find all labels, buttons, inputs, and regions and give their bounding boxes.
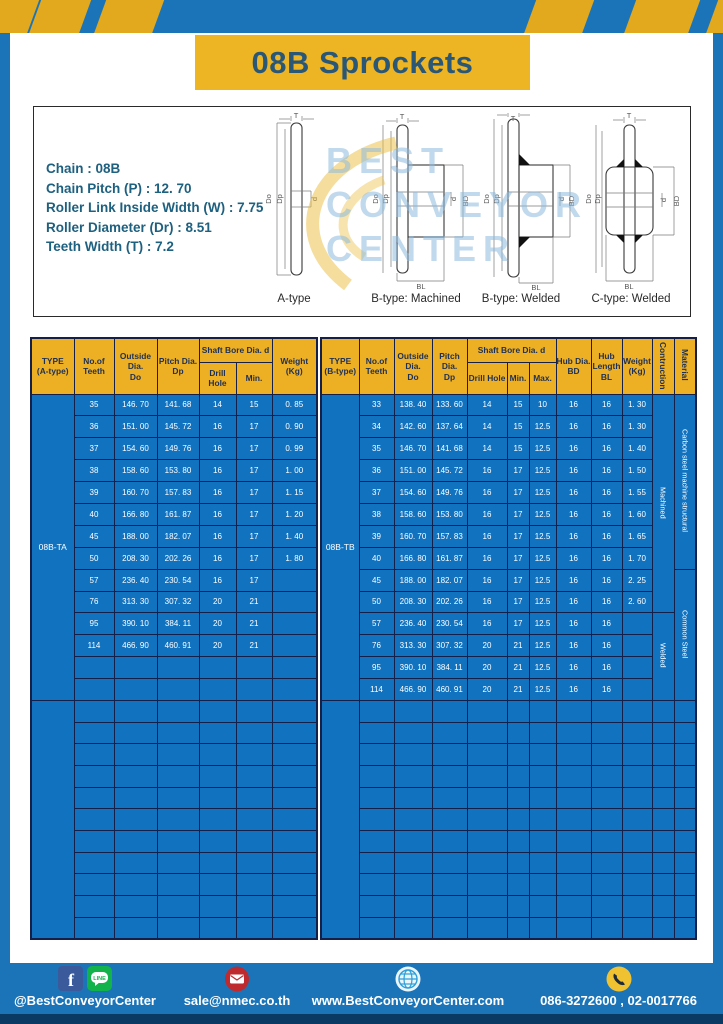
- table-cell: [272, 635, 317, 657]
- table-cell: 0. 90: [272, 416, 317, 438]
- line-icon: LINE: [87, 966, 112, 991]
- table-row: [321, 896, 696, 918]
- table-cell: [507, 787, 529, 809]
- table-cell: [652, 896, 674, 918]
- svg-text:Dp: Dp: [593, 194, 602, 204]
- table-cell: [74, 809, 114, 831]
- table-cell: 45: [359, 569, 394, 591]
- table-cell: [622, 744, 652, 766]
- table-row: 37154. 60149. 7616170. 99: [31, 438, 317, 460]
- table-cell: [674, 852, 696, 874]
- spec-line: Chain Pitch (P) : 12. 70: [46, 179, 263, 199]
- table-cell: 20: [467, 657, 507, 679]
- table-cell: 182. 07: [157, 525, 199, 547]
- table-cell: [114, 809, 157, 831]
- table-cell: 16: [199, 460, 236, 482]
- table-cell: [622, 787, 652, 809]
- col-header-outside-dia: Outside Dia. Do: [114, 338, 157, 394]
- table-cell: [359, 809, 394, 831]
- table-cell: [674, 700, 696, 722]
- table-cell: [236, 766, 272, 788]
- table-cell: 16: [591, 416, 622, 438]
- table-cell: [359, 722, 394, 744]
- table-cell: [394, 831, 432, 853]
- table-cell: [114, 766, 157, 788]
- table-row: 38158. 60153. 80161712.516161. 60: [321, 503, 696, 525]
- table-cell: [591, 766, 622, 788]
- table-cell: [652, 809, 674, 831]
- table-cell: 1. 15: [272, 482, 317, 504]
- a-type-table: TYPE (A-type) No.of Teeth Outside Dia. D…: [30, 337, 318, 940]
- table-cell: 16: [591, 460, 622, 482]
- table-row: [31, 874, 317, 896]
- table-cell: 390. 10: [114, 613, 157, 635]
- svg-text:Do: Do: [371, 194, 380, 204]
- table-cell: 16: [591, 503, 622, 525]
- table-cell: 35: [74, 394, 114, 416]
- table-cell: [556, 896, 591, 918]
- table-cell: 21: [507, 657, 529, 679]
- table-cell: 208. 30: [394, 591, 432, 613]
- table-cell: [556, 787, 591, 809]
- table-cell: [467, 831, 507, 853]
- table-cell: 12.5: [529, 438, 556, 460]
- table-cell: [236, 874, 272, 896]
- svg-text:d: d: [659, 198, 668, 202]
- table-cell: [652, 722, 674, 744]
- table-row: 08B-TB33138. 40133. 6014151016161. 30Mac…: [321, 394, 696, 416]
- table-cell: 157. 83: [432, 525, 467, 547]
- footer-social-section: f LINE @BestConveyorCenter: [0, 965, 170, 1012]
- table-row: 95390. 10384. 11202112.51616: [321, 657, 696, 679]
- table-cell: 17: [507, 569, 529, 591]
- table-cell: Machined: [652, 394, 674, 613]
- table-cell: 460. 91: [432, 679, 467, 701]
- table-cell: 16: [199, 503, 236, 525]
- table-cell: [467, 809, 507, 831]
- table-cell: [432, 896, 467, 918]
- table-cell: 16: [556, 438, 591, 460]
- table-cell: 20: [199, 591, 236, 613]
- table-cell: [359, 744, 394, 766]
- col-header-max: Max.: [529, 362, 556, 394]
- table-cell: [674, 787, 696, 809]
- table-cell: [74, 766, 114, 788]
- table-cell: [157, 896, 199, 918]
- diagram-label-c-type-welded: C-type: Welded: [576, 293, 686, 309]
- table-row: 114466. 90460. 912021: [31, 635, 317, 657]
- table-row: [31, 852, 317, 874]
- table-cell: [272, 700, 317, 722]
- table-cell: [394, 809, 432, 831]
- table-cell: 12.5: [529, 591, 556, 613]
- table-cell: Welded: [652, 613, 674, 701]
- table-cell: 16: [556, 547, 591, 569]
- table-cell: [432, 787, 467, 809]
- table-cell: 16: [467, 547, 507, 569]
- table-cell: [272, 679, 317, 701]
- spec-line: Roller Diameter (Dr) : 8.51: [46, 218, 263, 238]
- diagram-box: BEST CONVEYOR CENTER Chain : 08B Chain P…: [33, 106, 691, 317]
- table-cell: [359, 787, 394, 809]
- table-cell: [157, 917, 199, 939]
- table-row: [31, 657, 317, 679]
- table-cell: [114, 744, 157, 766]
- table-cell: [157, 744, 199, 766]
- table-row: [321, 700, 696, 722]
- top-stripe-bar: [0, 0, 723, 33]
- table-cell: [591, 852, 622, 874]
- table-cell: 188. 00: [394, 569, 432, 591]
- table-cell: [622, 896, 652, 918]
- table-cell: [74, 657, 114, 679]
- table-row: [321, 809, 696, 831]
- table-cell: 35: [359, 438, 394, 460]
- table-cell: 313. 30: [394, 635, 432, 657]
- table-cell: [272, 896, 317, 918]
- svg-text:T: T: [294, 113, 299, 120]
- svg-text:Dp: Dp: [492, 194, 501, 204]
- table-cell: 141. 68: [157, 394, 199, 416]
- table-row: 38158. 60153. 8016171. 00: [31, 460, 317, 482]
- table-row: [321, 831, 696, 853]
- table-cell: 460. 91: [157, 635, 199, 657]
- table-row: 37154. 60149. 76161712.516161. 55: [321, 482, 696, 504]
- table-cell: [114, 787, 157, 809]
- table-cell: 236. 40: [114, 569, 157, 591]
- table-cell: [394, 896, 432, 918]
- table-cell: [114, 700, 157, 722]
- table-cell: [157, 657, 199, 679]
- table-cell: 1. 30: [622, 416, 652, 438]
- title-banner: 08B Sprockets: [195, 35, 530, 90]
- table-cell: 10: [529, 394, 556, 416]
- table-cell: 12.5: [529, 657, 556, 679]
- table-cell: 1. 60: [622, 503, 652, 525]
- table-cell: [272, 852, 317, 874]
- table-cell: 16: [467, 503, 507, 525]
- svg-text:f: f: [68, 970, 75, 990]
- table-cell: 16: [591, 657, 622, 679]
- spec-line: Teeth Width (T) : 7.2: [46, 237, 263, 257]
- footer-email: sale@nmec.co.th: [184, 993, 291, 1008]
- table-cell: [467, 917, 507, 939]
- globe-icon: [395, 966, 421, 992]
- table-cell: [359, 874, 394, 896]
- stripe-decoration: [622, 0, 703, 33]
- table-row: [321, 852, 696, 874]
- table-cell: 12.5: [529, 569, 556, 591]
- table-cell: [432, 831, 467, 853]
- table-cell: [591, 917, 622, 939]
- table-cell: [114, 679, 157, 701]
- table-cell: [199, 679, 236, 701]
- table-cell: 16: [556, 569, 591, 591]
- table-cell: [272, 569, 317, 591]
- table-cell: [622, 657, 652, 679]
- table-cell: [467, 744, 507, 766]
- table-cell: 20: [199, 613, 236, 635]
- table-cell: [432, 766, 467, 788]
- table-cell: 1. 70: [622, 547, 652, 569]
- table-cell: 160. 70: [394, 525, 432, 547]
- table-cell: [236, 744, 272, 766]
- table-cell: 38: [359, 503, 394, 525]
- table-cell: 16: [591, 482, 622, 504]
- table-cell: 16: [556, 613, 591, 635]
- table-cell: 16: [591, 569, 622, 591]
- table-cell: [652, 874, 674, 896]
- table-cell: 1. 20: [272, 503, 317, 525]
- table-cell: 1. 30: [622, 394, 652, 416]
- table-cell: [467, 766, 507, 788]
- table-cell: [114, 831, 157, 853]
- table-cell: [674, 896, 696, 918]
- table-cell: [507, 744, 529, 766]
- table-cell: [272, 787, 317, 809]
- table-cell: [74, 679, 114, 701]
- table-cell: 16: [556, 503, 591, 525]
- table-cell: 20: [467, 679, 507, 701]
- table-cell: [199, 657, 236, 679]
- table-cell: [272, 831, 317, 853]
- table-cell: [74, 722, 114, 744]
- table-cell: 16: [591, 438, 622, 460]
- table-row: [31, 679, 317, 701]
- table-cell: [529, 722, 556, 744]
- table-cell: 45: [74, 525, 114, 547]
- table-cell: 17: [236, 438, 272, 460]
- table-cell: [507, 722, 529, 744]
- table-cell: [272, 917, 317, 939]
- table-cell: [622, 917, 652, 939]
- table-row: 76313. 30307. 32202112.51616: [321, 635, 696, 657]
- footer-email-section: sale@nmec.co.th: [172, 965, 302, 1012]
- table-cell: [394, 917, 432, 939]
- table-row: 50208. 30202. 26161712.516162. 60: [321, 591, 696, 613]
- table-cell: 39: [74, 482, 114, 504]
- table-cell: 16: [199, 569, 236, 591]
- table-cell: 16: [591, 525, 622, 547]
- table-cell: [622, 722, 652, 744]
- table-cell: [394, 700, 432, 722]
- table-row: 45188. 00182. 0716171. 40: [31, 525, 317, 547]
- table-cell: 12.5: [529, 635, 556, 657]
- table-cell: 12.5: [529, 460, 556, 482]
- table-cell: [272, 766, 317, 788]
- table-cell: 230. 54: [157, 569, 199, 591]
- table-cell: [507, 700, 529, 722]
- table-cell: [114, 657, 157, 679]
- table-cell: [74, 874, 114, 896]
- table-cell: [114, 917, 157, 939]
- table-cell: [556, 700, 591, 722]
- table-cell: [622, 679, 652, 701]
- footer-website-section: www.BestConveyorCenter.com: [304, 965, 512, 1012]
- table-cell: [74, 852, 114, 874]
- table-cell: 16: [591, 591, 622, 613]
- table-cell: [591, 787, 622, 809]
- table-cell: 14: [199, 394, 236, 416]
- stripe-decoration: [704, 0, 723, 33]
- table-cell: [556, 852, 591, 874]
- table-row: [321, 722, 696, 744]
- table-cell: 17: [507, 482, 529, 504]
- table-cell: [157, 831, 199, 853]
- table-cell: [394, 787, 432, 809]
- table-cell: 39: [359, 525, 394, 547]
- col-header-teeth: No.of Teeth: [74, 338, 114, 394]
- table-cell: [467, 787, 507, 809]
- table-cell: [359, 917, 394, 939]
- table-cell: 21: [236, 613, 272, 635]
- table-cell: [622, 809, 652, 831]
- table-cell: [157, 722, 199, 744]
- svg-text:Dp: Dp: [381, 194, 390, 204]
- table-cell: [529, 917, 556, 939]
- table-cell: [74, 700, 114, 722]
- table-cell: [556, 831, 591, 853]
- table-cell: [114, 896, 157, 918]
- table-row: [31, 917, 317, 939]
- table-cell: [507, 766, 529, 788]
- table-cell: Carbon steel machine structural: [674, 394, 696, 569]
- col-header-type: TYPE (B-type): [321, 338, 359, 394]
- table-cell: 38: [74, 460, 114, 482]
- table-row: 76313. 30307. 322021: [31, 591, 317, 613]
- table-cell: [199, 766, 236, 788]
- table-cell: 16: [556, 394, 591, 416]
- table-cell: 12.5: [529, 679, 556, 701]
- table-cell: 208. 30: [114, 547, 157, 569]
- table-cell: [236, 831, 272, 853]
- table-cell: 202. 26: [157, 547, 199, 569]
- table-cell: [622, 766, 652, 788]
- table-cell: 390. 10: [394, 657, 432, 679]
- table-row: 40166. 80161. 8716171. 20: [31, 503, 317, 525]
- table-cell: [467, 722, 507, 744]
- table-cell: [674, 874, 696, 896]
- table-row: [321, 917, 696, 939]
- table-cell: [674, 766, 696, 788]
- table-row: [31, 700, 317, 722]
- table-cell: [359, 831, 394, 853]
- table-cell: [114, 852, 157, 874]
- table-cell: 21: [507, 679, 529, 701]
- table-cell: [591, 700, 622, 722]
- table-cell: 166. 80: [114, 503, 157, 525]
- table-cell: [529, 787, 556, 809]
- table-cell: 12.5: [529, 547, 556, 569]
- table-cell: [652, 917, 674, 939]
- table-cell: 12.5: [529, 613, 556, 635]
- table-cell: 161. 87: [432, 547, 467, 569]
- table-cell: 384. 11: [157, 613, 199, 635]
- b-type-table: TYPE (B-type) No.of Teeth Outside Dia. D…: [320, 337, 697, 940]
- footer-contact-bar: f LINE @BestConveyorCenter sale: [0, 963, 723, 1014]
- table-cell: 236. 40: [394, 613, 432, 635]
- table-cell: [652, 831, 674, 853]
- table-cell: [272, 613, 317, 635]
- table-cell: 0. 99: [272, 438, 317, 460]
- table-row: [31, 831, 317, 853]
- table-cell: 158. 60: [114, 460, 157, 482]
- table-cell: [507, 809, 529, 831]
- table-cell: [199, 809, 236, 831]
- table-cell: 36: [359, 460, 394, 482]
- table-cell: [622, 852, 652, 874]
- col-header-drill-hole: Drill Hole: [199, 362, 236, 394]
- table-cell: 1. 65: [622, 525, 652, 547]
- diagram-label-b-type-machined: B-type: Machined: [361, 293, 471, 309]
- table-cell: 12.5: [529, 482, 556, 504]
- table-cell: 137. 64: [432, 416, 467, 438]
- table-cell: 16: [199, 416, 236, 438]
- table-row: 40166. 80161. 87161712.516161. 70: [321, 547, 696, 569]
- svg-text:BL: BL: [531, 283, 540, 291]
- table-cell: [236, 809, 272, 831]
- table-cell: [674, 831, 696, 853]
- table-cell: 17: [236, 503, 272, 525]
- table-cell: [272, 744, 317, 766]
- footer-phone-numbers: 086-3272600 , 02-0017766: [540, 993, 697, 1008]
- table-cell: [236, 722, 272, 744]
- table-cell: 133. 60: [432, 394, 467, 416]
- table-cell: 307. 32: [157, 591, 199, 613]
- footer-phone-section: 086-3272600 , 02-0017766: [514, 965, 723, 1012]
- table-cell: 160. 70: [114, 482, 157, 504]
- table-cell: [236, 657, 272, 679]
- table-cell: 20: [467, 635, 507, 657]
- table-cell: 1. 40: [622, 438, 652, 460]
- table-cell: [529, 831, 556, 853]
- table-cell: 50: [359, 591, 394, 613]
- table-cell: [591, 809, 622, 831]
- table-cell: 2. 25: [622, 569, 652, 591]
- table-cell: [74, 744, 114, 766]
- svg-text:Dp: Dp: [275, 194, 284, 204]
- table-cell: [236, 679, 272, 701]
- svg-text:LINE: LINE: [93, 976, 106, 982]
- table-cell: [507, 852, 529, 874]
- table-cell: 16: [556, 635, 591, 657]
- stripe-decoration: [522, 0, 597, 33]
- table-cell: 0. 85: [272, 394, 317, 416]
- table-cell: 17: [507, 591, 529, 613]
- table-cell: [652, 700, 674, 722]
- table-cell: 16: [199, 438, 236, 460]
- table-cell: [74, 831, 114, 853]
- table-cell: [272, 874, 317, 896]
- table-cell: [432, 700, 467, 722]
- table-cell: [652, 744, 674, 766]
- table-cell: 153. 80: [432, 503, 467, 525]
- table-cell: 16: [591, 547, 622, 569]
- table-cell: [272, 591, 317, 613]
- table-cell: [674, 917, 696, 939]
- table-cell: 21: [236, 591, 272, 613]
- table-row: 08B-TA35146. 70141. 6814150. 85: [31, 394, 317, 416]
- table-cell: 1. 80: [272, 547, 317, 569]
- table-cell: 57: [359, 613, 394, 635]
- table-cell: [622, 635, 652, 657]
- catalog-page: 08B Sprockets BEST CONVEYOR CENTER Chain…: [0, 0, 723, 1024]
- table-row: [321, 787, 696, 809]
- svg-text:Do: Do: [264, 194, 273, 204]
- col-header-material: Material: [674, 338, 696, 394]
- table-cell: [272, 657, 317, 679]
- table-cell: [556, 874, 591, 896]
